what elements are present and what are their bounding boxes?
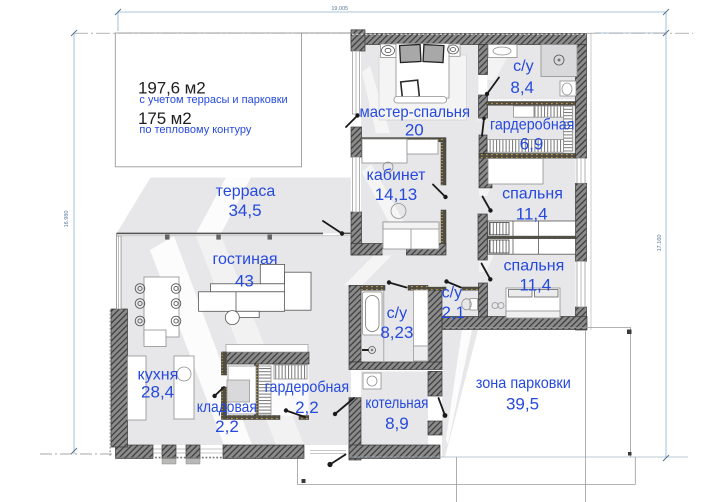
svg-text:14,13: 14,13 — [375, 185, 418, 204]
svg-text:11,4: 11,4 — [516, 204, 548, 223]
svg-text:с/у: с/у — [387, 305, 407, 322]
svg-text:терраса: терраса — [216, 183, 276, 200]
svg-text:17.160: 17.160 — [657, 235, 663, 252]
svg-text:16.980: 16.980 — [64, 211, 70, 228]
svg-text:28,4: 28,4 — [141, 383, 174, 402]
svg-text:8,9: 8,9 — [385, 414, 409, 433]
svg-text:зона парковки: зона парковки — [476, 375, 571, 392]
svg-text:с учетом террасы и парковки: с учетом террасы и парковки — [139, 94, 287, 106]
svg-text:34,5: 34,5 — [228, 201, 261, 220]
svg-text:мастер-спальня: мастер-спальня — [360, 104, 471, 121]
svg-text:по тепловому контуру: по тепловому контуру — [139, 124, 252, 136]
svg-text:43: 43 — [235, 271, 254, 290]
svg-text:спальня: спальня — [504, 258, 565, 275]
svg-text:котельная: котельная — [365, 395, 428, 412]
svg-text:2,2: 2,2 — [295, 398, 319, 417]
svg-text:2,2: 2,2 — [215, 417, 239, 436]
svg-text:19.005: 19.005 — [331, 6, 348, 12]
svg-text:8,23: 8,23 — [380, 323, 413, 342]
svg-text:8,4: 8,4 — [510, 78, 534, 97]
svg-text:кухня: кухня — [138, 367, 179, 384]
svg-text:2,1: 2,1 — [441, 303, 465, 322]
svg-text:с/у: с/у — [513, 58, 533, 75]
svg-text:6,9: 6,9 — [520, 135, 544, 154]
svg-text:20: 20 — [405, 121, 424, 140]
svg-text:кладовая: кладовая — [197, 399, 257, 416]
svg-text:гостиная: гостиная — [212, 251, 277, 268]
svg-text:гардеробная: гардеробная — [490, 117, 575, 134]
svg-text:с/у: с/у — [442, 285, 462, 302]
svg-text:спальня: спальня — [502, 186, 563, 203]
svg-text:гардеробная: гардеробная — [265, 379, 350, 396]
svg-text:кабинет: кабинет — [367, 167, 427, 184]
svg-text:39,5: 39,5 — [506, 395, 539, 414]
svg-text:11,4: 11,4 — [519, 275, 551, 294]
